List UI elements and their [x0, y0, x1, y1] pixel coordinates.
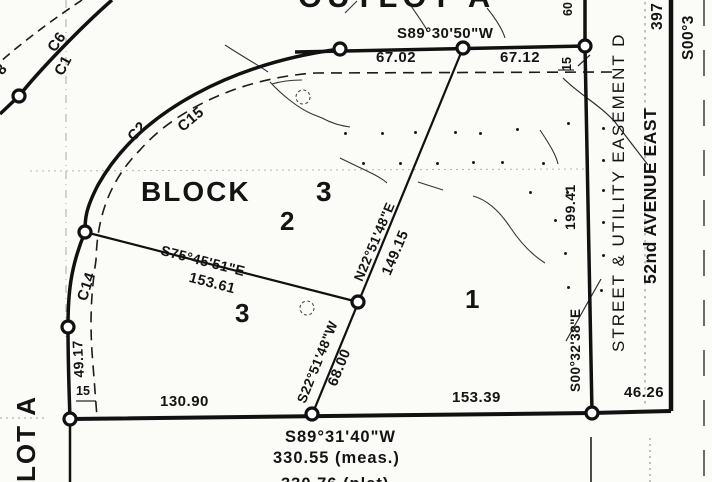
label-easement-note: STREET & UTILITY EASEMENT D: [610, 33, 628, 352]
survey-monument: [334, 43, 346, 55]
survey-monument: [457, 42, 469, 54]
label-block-number: 3: [316, 177, 332, 206]
stipple-dot: [566, 191, 569, 194]
stipple-dot: [529, 191, 532, 194]
stipple-dot: [362, 162, 365, 165]
stipple-dot: [414, 131, 417, 134]
label-dist-south-plat: 330.76 (plat): [281, 476, 389, 482]
label-dim-60: 60: [562, 2, 575, 16]
boundary-east-line: [585, 0, 592, 413]
stipple-dot: [479, 132, 482, 135]
label-dim-397: 397: [650, 3, 666, 30]
stipple-dot: [542, 162, 545, 165]
label-lot-1-number: 1: [465, 286, 479, 313]
label-dist-153-39: 153.39: [452, 390, 501, 406]
shrub-symbol: [300, 301, 314, 315]
label-lot-3-number: 3: [235, 300, 249, 327]
stipple-dot: [600, 289, 603, 292]
label-bearing-north: S89°30'50"W: [397, 26, 493, 42]
label-dist-south-meas: 330.55 (meas.): [273, 450, 400, 467]
label-dist-130-90: 130.90: [160, 394, 209, 410]
setback-dashed-upper-left: [0, 0, 82, 62]
boundary-curve-block: [68, 49, 340, 419]
label-dist-67-12: 67.12: [500, 50, 540, 66]
label-dist-67-02: 67.02: [376, 50, 416, 66]
stipple-dot: [381, 132, 384, 135]
shrub-symbol: [296, 90, 310, 104]
label-lot-a-label: LOT A: [13, 395, 40, 482]
survey-monument: [586, 407, 598, 419]
stipple-dot: [602, 159, 605, 162]
label-lot-2-number: 2: [280, 208, 294, 235]
survey-monument: [64, 413, 76, 425]
stipple-dot: [564, 252, 567, 255]
survey-monument: [62, 321, 74, 333]
label-bearing-south: S89°31'40"W: [285, 429, 396, 446]
survey-monument: [13, 90, 25, 102]
plat-linework: [0, 0, 712, 482]
survey-monuments: [13, 40, 598, 425]
stipple-dot: [344, 132, 347, 135]
survey-monument: [306, 408, 318, 420]
label-dist-46-26: 46.26: [624, 385, 664, 401]
stipple-dot: [602, 221, 605, 224]
survey-monument: [79, 226, 91, 238]
label-street-52nd-avenue: 52nd AVENUE EAST: [641, 108, 659, 284]
stipple-dot: [454, 131, 457, 134]
stipple-dot: [602, 189, 605, 192]
plat-map-canvas: OUTLOT AS89°30'50"W67.0267.12BLOCK3231S7…: [0, 0, 712, 482]
label-block-word: BLOCK: [141, 177, 251, 206]
faint-dotted-line-horizontal: [30, 169, 587, 171]
label-bearing-right-edge: S00°3: [681, 15, 697, 60]
stipple-dot: [501, 161, 504, 164]
label-tick-15-top: 15: [561, 57, 574, 71]
stipple-dot: [567, 122, 570, 125]
label-bearing-s00: S00°32'38"E: [569, 308, 583, 392]
stipple-dot: [472, 161, 475, 164]
stipple-dot: [602, 127, 605, 130]
stipple-dot: [602, 254, 605, 257]
label-outlot-title: OUTLOT A: [298, 0, 495, 14]
stipple-dot: [436, 162, 439, 165]
stipple-dot: [567, 286, 570, 289]
survey-monument: [579, 40, 591, 52]
stipple-dot: [399, 162, 402, 165]
stipple-dot: [516, 128, 519, 131]
label-tick-15-left: 15: [76, 385, 90, 398]
label-dist-49-17: 49.17: [70, 340, 87, 378]
stipple-dot: [554, 219, 557, 222]
boundary-south-line: [70, 411, 671, 419]
survey-monument: [352, 296, 364, 308]
